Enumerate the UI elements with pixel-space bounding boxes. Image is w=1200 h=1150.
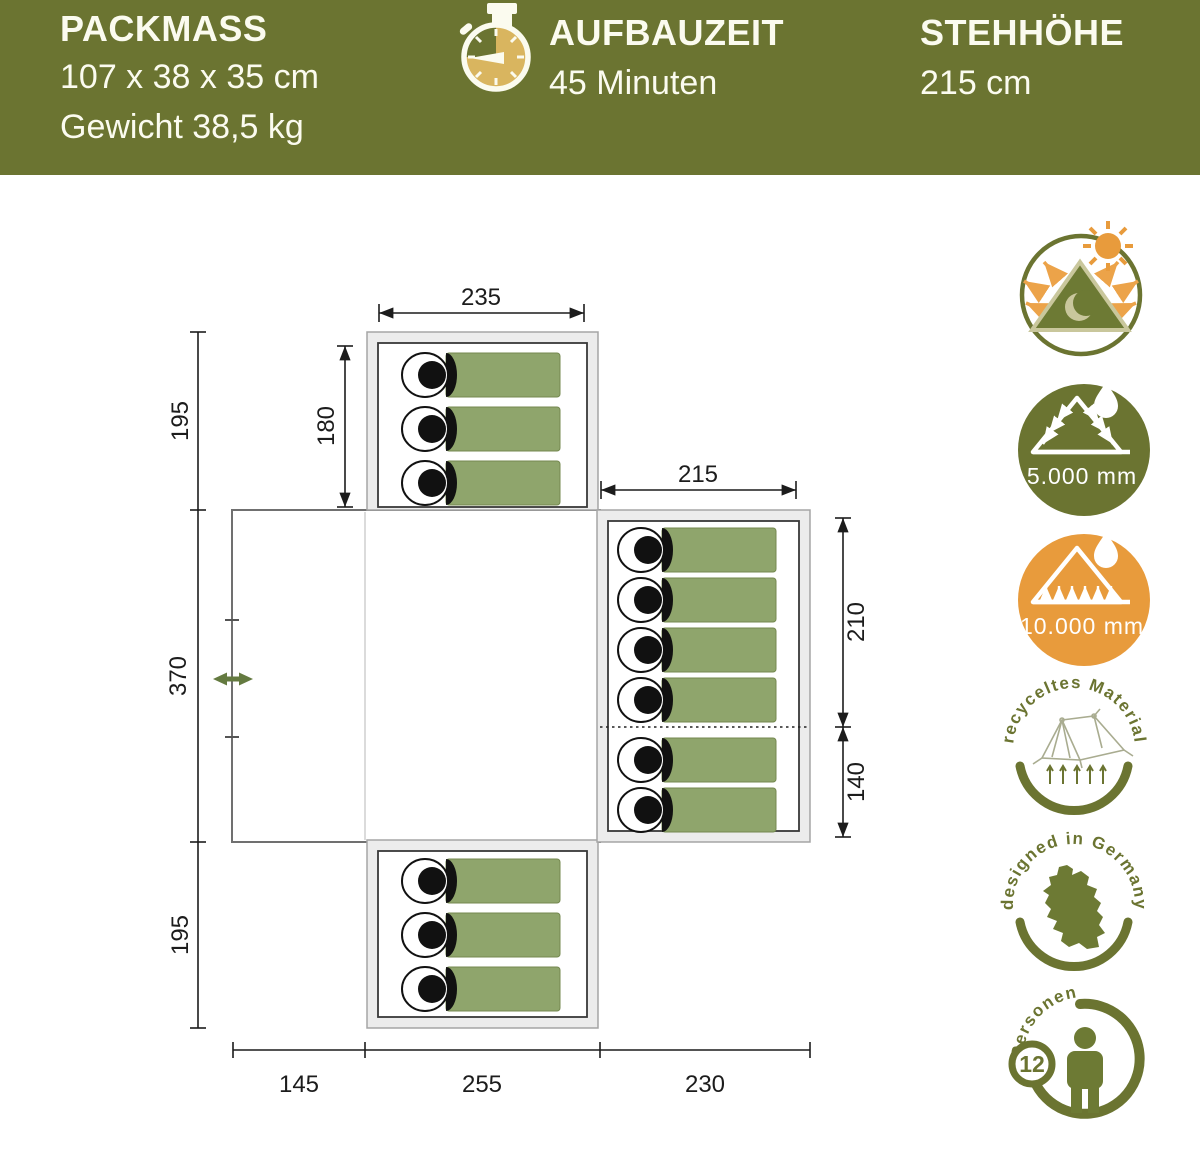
- capacity-badge: Personen 12: [1008, 982, 1140, 1114]
- recycled-label: recyceltes Material: [998, 673, 1149, 745]
- dim-right-cabin-lower: 140: [843, 762, 870, 802]
- dim-right-cabin-upper: 210: [843, 602, 870, 642]
- design-badge: designed in Germany: [998, 829, 1150, 967]
- groundsheet-value: 10.000 mm: [1020, 613, 1144, 639]
- dimension-lines: [190, 304, 851, 1058]
- packmass-title: PACKMASS: [60, 8, 267, 50]
- dim-main-depth: 370: [165, 656, 192, 696]
- climate-badge: [1022, 221, 1140, 354]
- dim-bottom-right: 230: [685, 1071, 725, 1098]
- right-cabin: [597, 510, 810, 842]
- flysheet-value: 5.000 mm: [1027, 463, 1137, 489]
- dim-top-cabin-width: 235: [461, 284, 501, 311]
- dim-bottom-middle: 255: [462, 1071, 502, 1098]
- sleeping-bag-icon: [402, 967, 560, 1011]
- sleeping-bag-icon: [618, 628, 776, 672]
- main-body: [232, 510, 600, 842]
- dimension-labels: 235 180 195 215 370 210 140 195 145 255 …: [165, 284, 870, 1098]
- dim-top-cabin-depth: 180: [313, 406, 340, 446]
- capacity-label: Personen: [1008, 982, 1079, 1058]
- groundsheet-badge: 10.000 mm: [1018, 532, 1150, 666]
- water-drop-icon: [1094, 532, 1118, 568]
- waterproof-floor-icon: [1018, 534, 1150, 666]
- packmass-weight: Gewicht 38,5 kg: [60, 108, 304, 147]
- tent-infographic: PACKMASS 107 x 38 x 35 cm Gewicht 38,5 k…: [0, 0, 1200, 1150]
- sleeping-bag-icon: [618, 578, 776, 622]
- sleeping-bag-icon: [618, 678, 776, 722]
- sleeping-bag-icon: [402, 353, 560, 397]
- spec-header: PACKMASS 107 x 38 x 35 cm Gewicht 38,5 k…: [0, 0, 1200, 175]
- dim-top-cabin-height: 195: [167, 401, 194, 441]
- stehhoehe-value: 215 cm: [920, 64, 1032, 103]
- aufbauzeit-title: AUFBAUZEIT: [549, 12, 784, 54]
- waterproof-flysheet-icon: [1018, 384, 1150, 516]
- water-drop-icon: [1094, 382, 1118, 418]
- design-label: designed in Germany: [998, 829, 1150, 910]
- floorplan: 235 180 195 215 370 210 140 195 145 255 …: [165, 284, 870, 1098]
- dim-bottom-left: 145: [279, 1071, 319, 1098]
- sun-icon: [1083, 221, 1133, 271]
- capacity-count-circle: [1012, 1044, 1052, 1084]
- tent-pegs-icon: [1047, 766, 1106, 784]
- sleeping-bag-icon: [618, 738, 776, 782]
- sun-moon-tent-icon: [1022, 236, 1140, 354]
- recycled-tent-icon: [1033, 709, 1133, 768]
- germany-map-icon: [1043, 865, 1105, 949]
- sleeping-bag-icon: [402, 461, 560, 505]
- sleeping-bag-icon: [402, 407, 560, 451]
- dim-right-cabin-width: 215: [678, 461, 718, 488]
- door-arrow-icon: [213, 673, 253, 686]
- sleeping-bag-icon: [402, 859, 560, 903]
- packmass-dimensions: 107 x 38 x 35 cm: [60, 58, 319, 97]
- sleeping-bag-icon: [402, 913, 560, 957]
- capacity-count: 12: [1019, 1051, 1045, 1077]
- stehhoehe-title: STEHHÖHE: [920, 12, 1124, 54]
- bottom-cabin: [367, 840, 598, 1028]
- aufbauzeit-value: 45 Minuten: [549, 64, 717, 103]
- sleeping-bag-icon: [618, 788, 776, 832]
- person-icon: [1067, 1027, 1103, 1113]
- sleeping-bag-icon: [618, 528, 776, 572]
- flysheet-badge: 5.000 mm: [1018, 382, 1150, 516]
- recycled-badge: recyceltes Material: [998, 673, 1149, 811]
- top-cabin: [367, 332, 598, 510]
- dim-bottom-cabin-height: 195: [167, 915, 194, 955]
